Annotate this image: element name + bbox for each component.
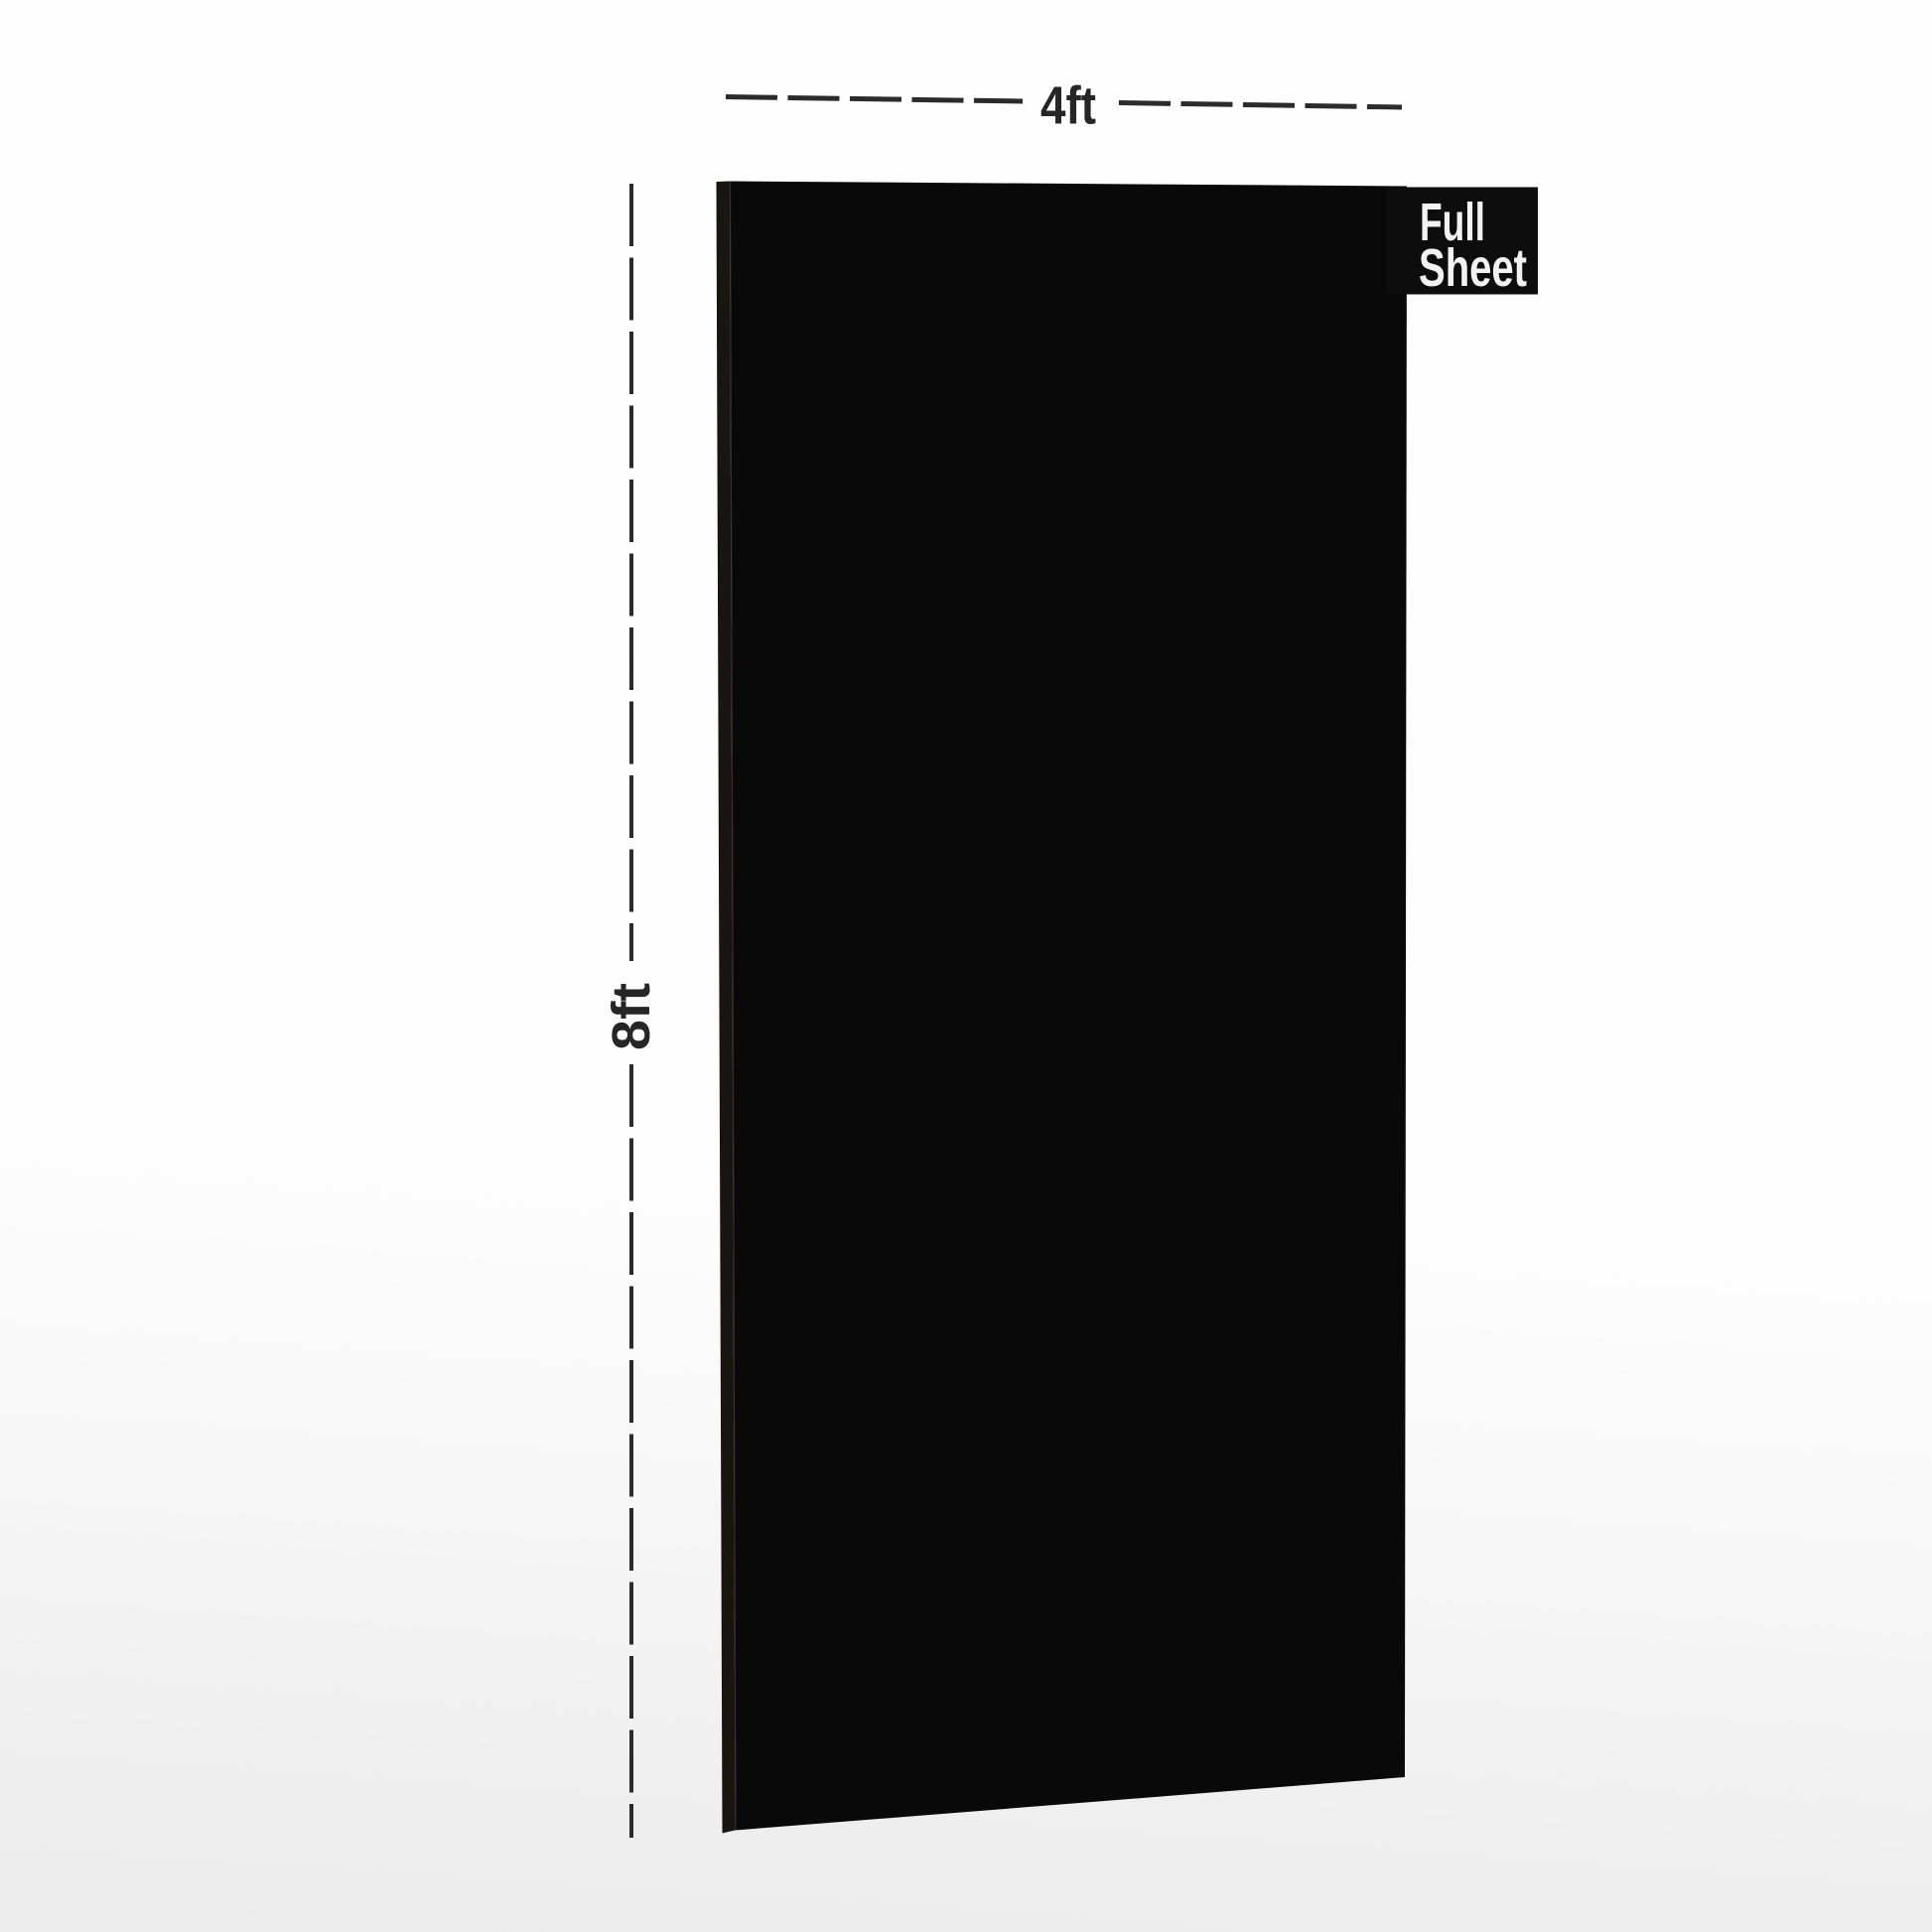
svg-text:4ft: 4ft	[1040, 77, 1096, 136]
svg-text:8ft: 8ft	[603, 983, 661, 1050]
svg-text:Sheet: Sheet	[1419, 239, 1527, 298]
